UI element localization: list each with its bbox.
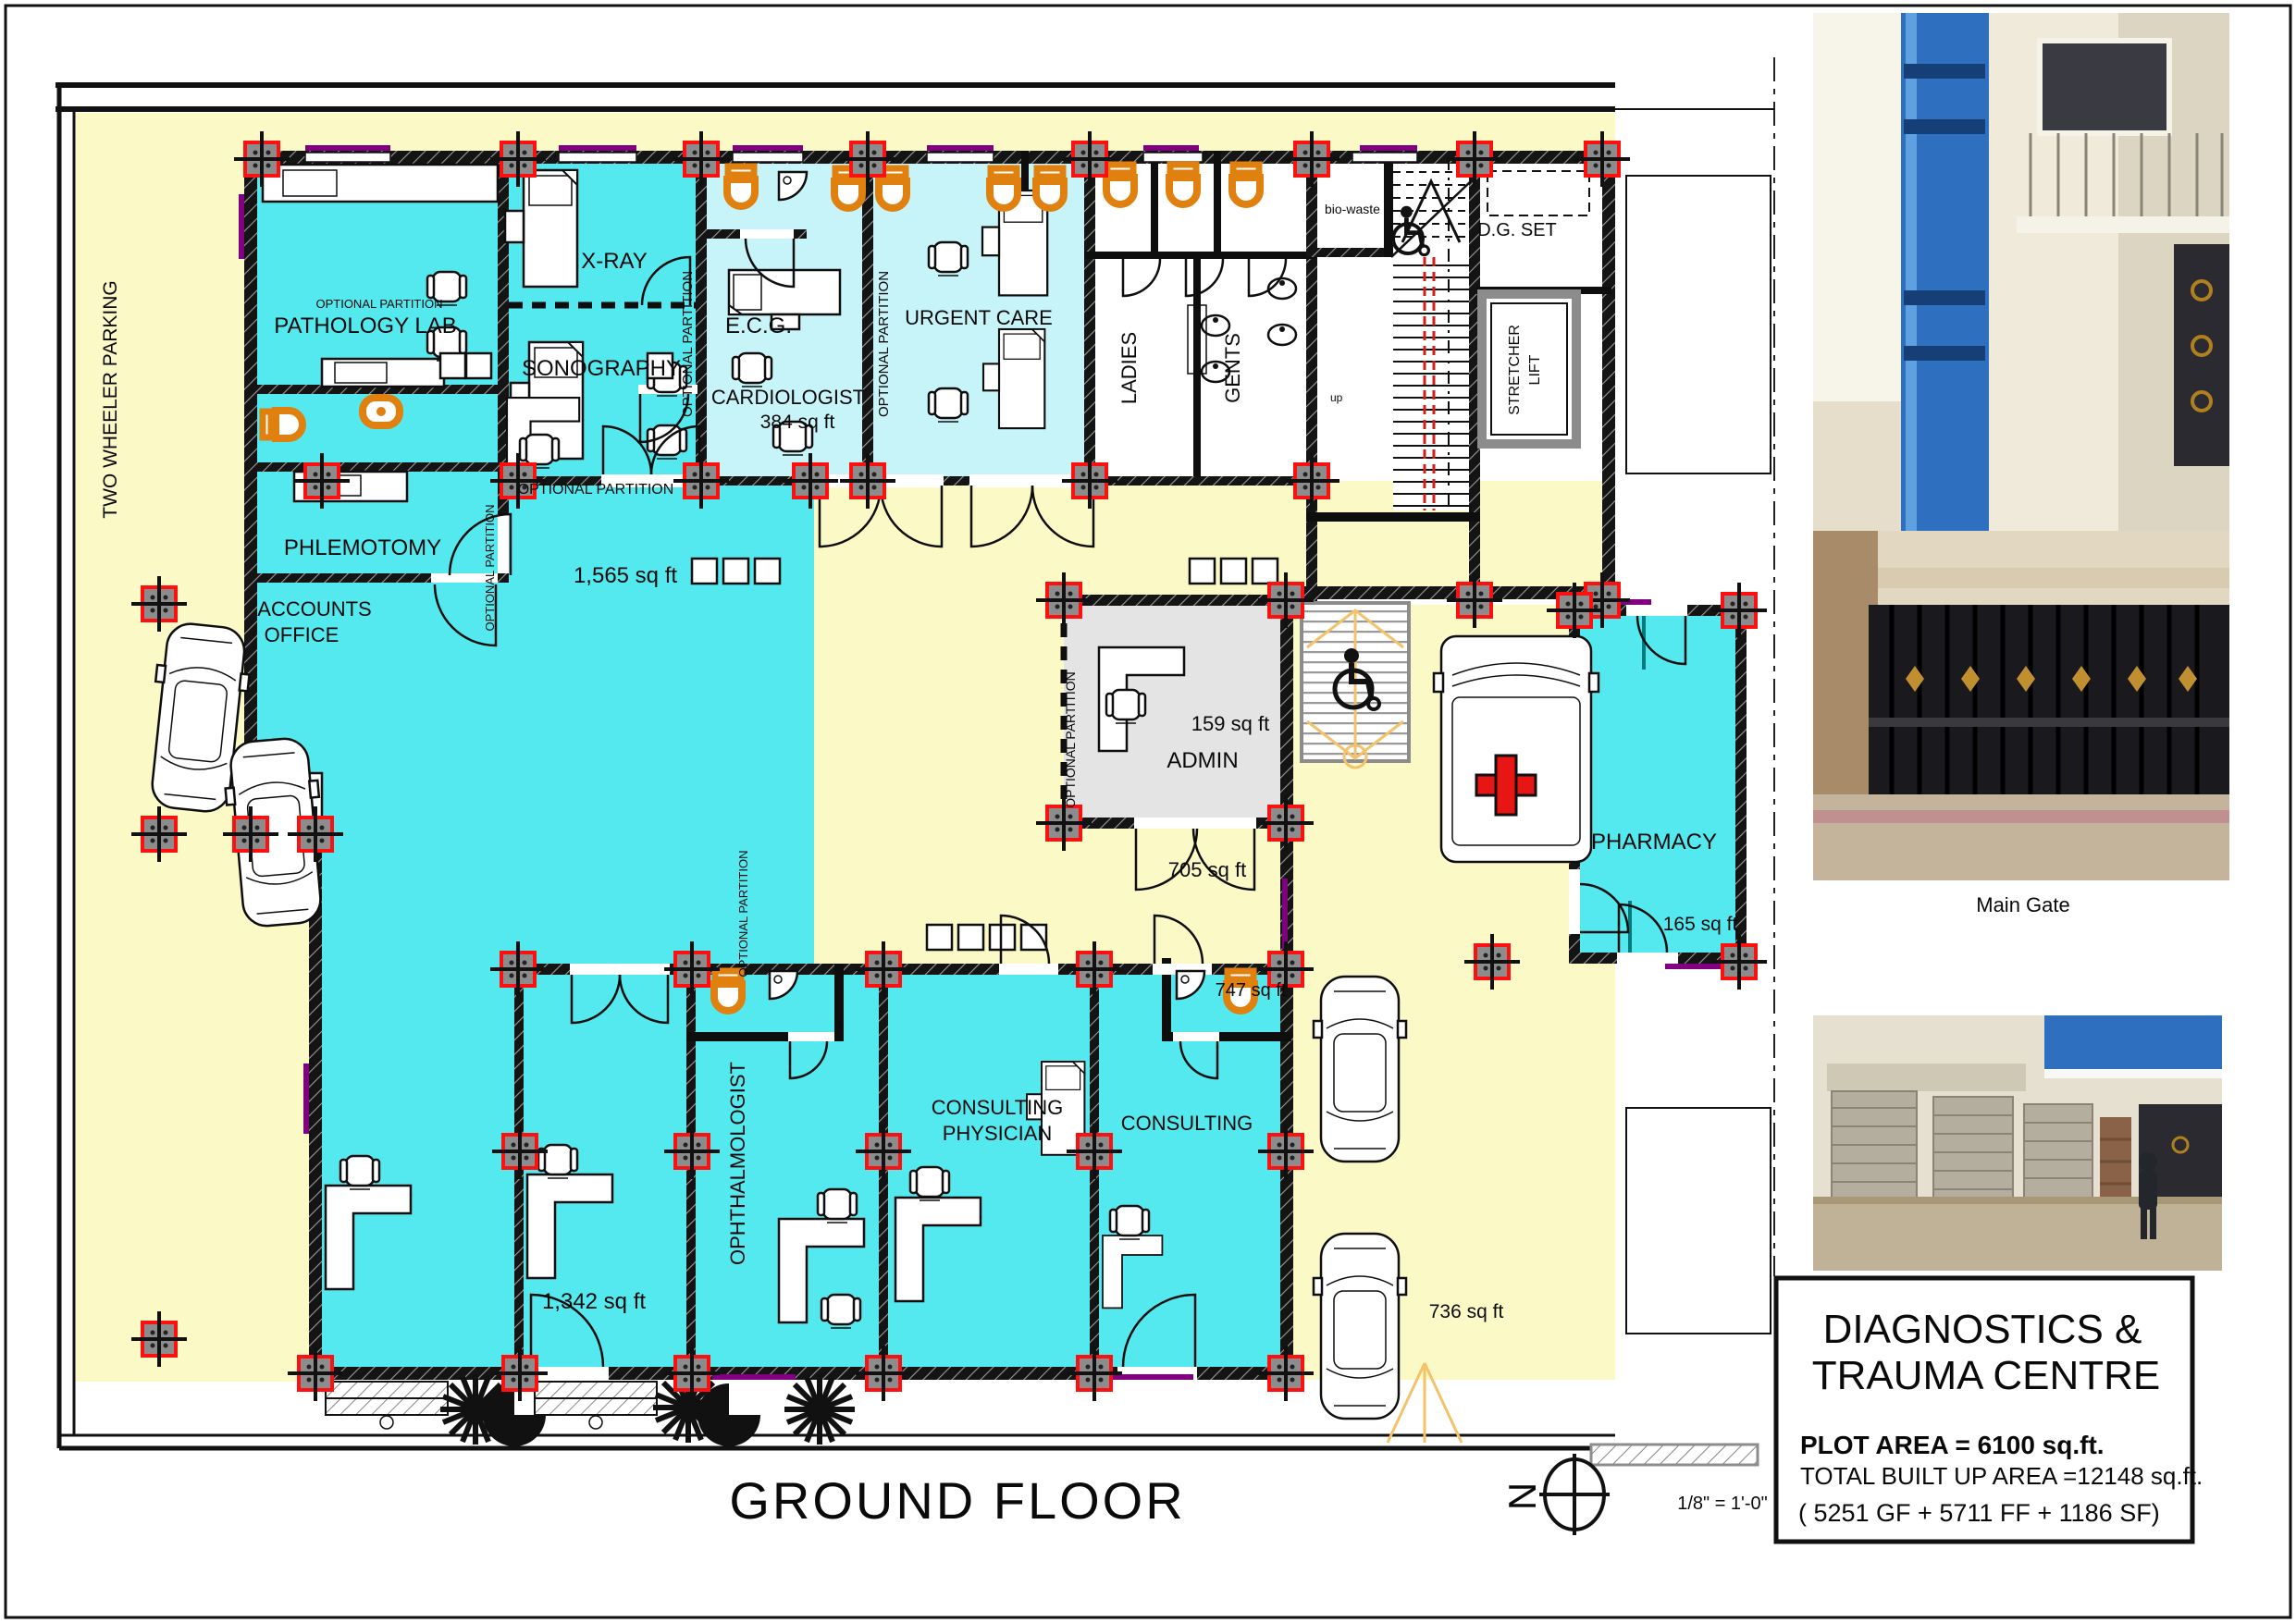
label-urgent-care: URGENT CARE	[905, 306, 1053, 329]
title-block: DIAGNOSTICS & TRAUMA CENTRE PLOT AREA = …	[1776, 1278, 2203, 1542]
main-gate-caption: Main Gate	[1976, 893, 2070, 916]
label-optional-partition: OPTIONAL PARTITION	[483, 504, 497, 631]
label-admin-area: 159 sq ft	[1191, 712, 1269, 735]
waiting-chair	[692, 559, 717, 584]
wc-icon	[1232, 165, 1260, 204]
waiting-chair	[466, 353, 491, 378]
wc-icon	[1106, 165, 1134, 204]
side-open-area-bottom	[1626, 1108, 1771, 1334]
label-lobby-area: 705 sq ft	[1168, 858, 1246, 881]
label-pathology: PATHOLOGY LAB	[274, 314, 456, 338]
area-breakdown-text: ( 5251 GF + 5711 FF + 1186 SF)	[1798, 1499, 2160, 1527]
label-xray: X-RAY	[581, 249, 648, 274]
waiting-chair	[1253, 559, 1278, 584]
label-car-parking-area: 736 sq ft	[1429, 1301, 1504, 1322]
label-consulting: CONSULTING	[1121, 1112, 1253, 1135]
bench	[326, 1382, 448, 1429]
right-panel: Main Gate DIAGNOSTICS &	[1776, 13, 2229, 1542]
waiting-chair	[755, 559, 780, 584]
wc-icon	[1169, 165, 1197, 204]
wc-icon	[1036, 168, 1064, 208]
label-accounts-1: ACCOUNTS	[257, 597, 371, 621]
label-admin: ADMIN	[1167, 748, 1238, 773]
stair-treads	[1393, 257, 1469, 510]
label-ophthalmologist: OPHTHALMOLOGIST	[726, 1062, 749, 1265]
label-consulting-physician-1: CONSULTING	[932, 1096, 1064, 1119]
label-gents: GENTS	[1221, 333, 1244, 403]
label-pharmacy-area: 165 sq ft	[1663, 914, 1738, 935]
label-south-hall-area: 1,342 sq ft	[542, 1289, 646, 1314]
label-pharmacy: PHARMACY	[1591, 830, 1717, 855]
label-dg-set: D.G. SET	[1477, 220, 1557, 240]
label-stretcher-1: STRETCHER	[1507, 325, 1523, 415]
waiting-chair	[440, 353, 465, 378]
floor-plan-canvas: PATHOLOGY LAB X-RAY SONOGRAPHY E.C.G. CA…	[0, 0, 2296, 1623]
label-sonography: SONOGRAPHY	[522, 356, 681, 381]
label-two-wheeler-parking: TWO WHEELER PARKING	[100, 280, 121, 518]
label-stretcher-2: LIFT	[1527, 354, 1543, 385]
main-gate-photo	[1813, 13, 2229, 880]
waiting-chair	[1221, 559, 1246, 584]
drawing-sheet: PATHOLOGY LAB X-RAY SONOGRAPHY E.C.G. CA…	[0, 0, 2296, 1623]
label-phlemotomy: PHLEMOTOMY	[284, 535, 441, 560]
waiting-chair	[958, 925, 983, 950]
north-letter: N	[1500, 1482, 1544, 1510]
label-optional-partition: OPTIONAL PARTITION	[736, 850, 750, 977]
sink-icon	[1268, 325, 1296, 345]
wc-icon	[263, 411, 302, 438]
label-optional-partition: OPTIONAL PARTITION	[680, 271, 696, 417]
waiting-chair	[723, 559, 748, 584]
label-accounts-2: OFFICE	[265, 623, 339, 646]
tree-icon	[784, 1374, 855, 1445]
parked-car	[1314, 1234, 1406, 1419]
label-up: up	[1330, 391, 1343, 404]
label-consulting-physician-2: PHYSICIAN	[943, 1122, 1053, 1145]
label-cardiologist: CARDIOLOGIST	[711, 386, 865, 409]
label-cardiologist-area: 384 sq ft	[760, 412, 835, 433]
label-biowaste: bio-waste	[1325, 202, 1380, 216]
label-optional-partition: OPTIONAL PARTITION	[315, 297, 442, 311]
label-optional-partition: OPTIONAL PARTITION	[876, 271, 892, 417]
label-ladies: LADIES	[1117, 332, 1141, 404]
waiting-chair	[1190, 559, 1215, 584]
label-waiting-area: 1,565 sq ft	[574, 563, 677, 588]
wc-icon	[990, 168, 1018, 208]
wc-icon	[727, 166, 755, 206]
label-optional-partition: OPTIONAL PARTITION	[1063, 671, 1078, 808]
bench	[535, 1382, 657, 1429]
entry-ramp	[1591, 1445, 1758, 1465]
scale-label: 1/8" = 1'-0"	[1677, 1494, 1768, 1514]
floor-title: GROUND FLOOR	[729, 1471, 1185, 1530]
waiting-chair	[990, 925, 1015, 950]
side-open-area-top	[1626, 176, 1771, 473]
room-pharmacy	[1574, 610, 1741, 958]
ambulance	[1434, 636, 1599, 862]
planter-icon	[697, 1383, 760, 1446]
built-up-area-text: TOTAL BUILT UP AREA =12148 sq.ft.	[1800, 1462, 2203, 1490]
sink-icon	[363, 398, 400, 425]
project-name-line2: TRAUMA CENTRE	[1812, 1353, 2160, 1398]
parked-car	[1314, 977, 1406, 1162]
street-view-photo	[1813, 1015, 2222, 1271]
waiting-chair	[927, 925, 952, 950]
label-consulting-area: 747 sq ft	[1216, 980, 1287, 1001]
project-name-line1: DIAGNOSTICS &	[1823, 1307, 2142, 1352]
plot-area-text: PLOT AREA = 6100 sq.ft.	[1800, 1431, 2105, 1459]
label-ecg: E.C.G.	[725, 314, 792, 338]
label-optional-partition: OPTIONAL PARTITION	[518, 482, 674, 498]
